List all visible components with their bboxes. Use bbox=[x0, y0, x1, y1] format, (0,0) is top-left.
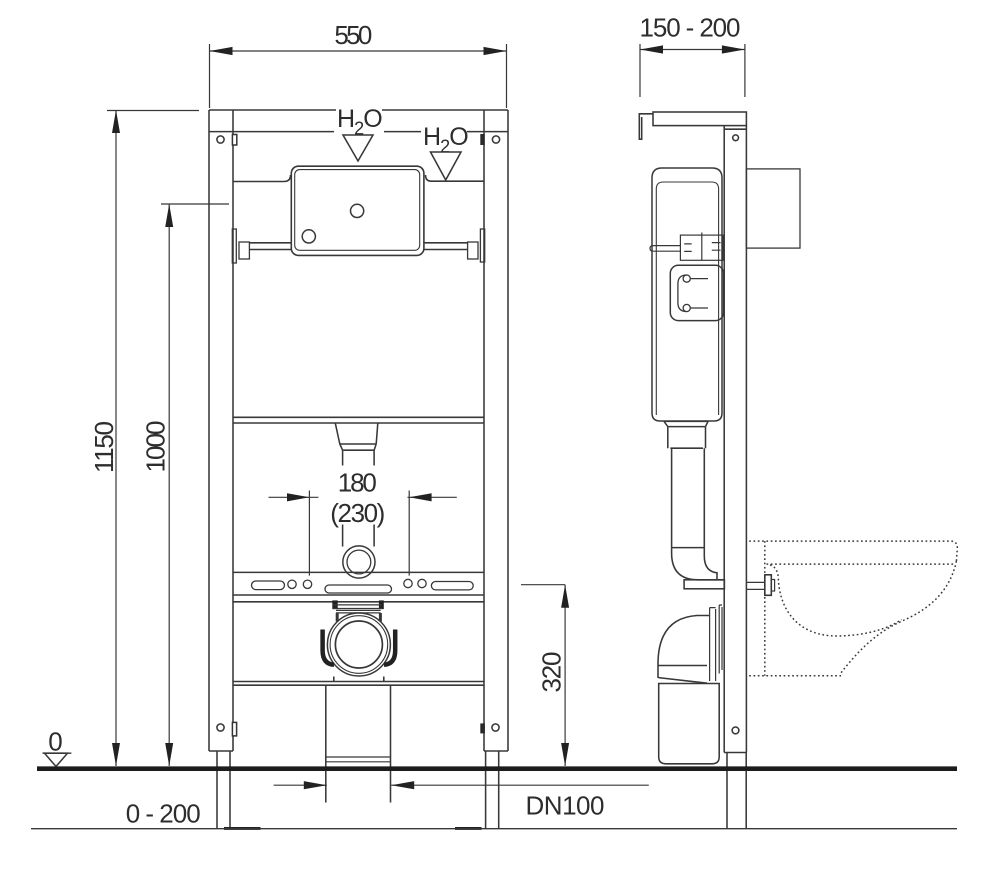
svg-text:0 - 200: 0 - 200 bbox=[126, 799, 201, 829]
svg-text:320: 320 bbox=[537, 652, 567, 693]
svg-text:(230): (230) bbox=[330, 498, 385, 528]
svg-text:H2O: H2O bbox=[337, 105, 382, 139]
svg-text:DN100: DN100 bbox=[526, 791, 605, 821]
svg-text:1000: 1000 bbox=[141, 421, 171, 473]
svg-text:180: 180 bbox=[338, 468, 377, 498]
svg-text:550: 550 bbox=[334, 20, 372, 50]
svg-text:0: 0 bbox=[48, 727, 62, 757]
svg-text:1150: 1150 bbox=[89, 421, 119, 473]
svg-text:150 - 200: 150 - 200 bbox=[640, 13, 741, 43]
